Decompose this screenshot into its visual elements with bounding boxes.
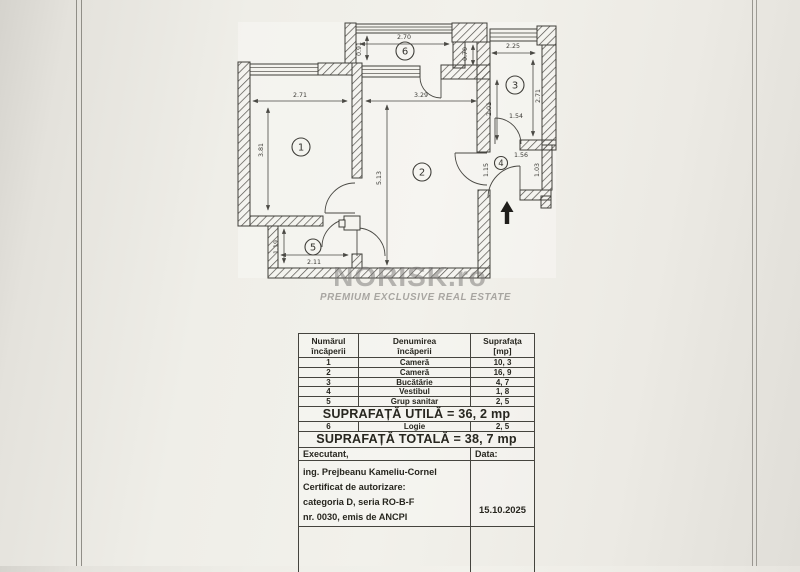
page-border-right-inner — [752, 0, 753, 566]
window-room2 — [362, 66, 420, 77]
page-border-right-outer — [756, 0, 757, 566]
wall-room5-stub — [352, 254, 362, 268]
date-label: Data: — [471, 448, 534, 460]
dim-room2-height: 5.13 — [376, 171, 383, 185]
table-row: 2 Cameră 16, 9 — [298, 368, 535, 378]
svg-text:5: 5 — [310, 243, 316, 254]
svg-text:1: 1 — [298, 143, 304, 154]
useful-area-row: SUPRAFAȚĂ UTILĂ = 36, 2 mp — [298, 407, 535, 422]
wall-room2-right-lower — [478, 190, 490, 278]
wall-kitchen-left — [477, 42, 490, 152]
executant-header-row: Executant, Data: — [298, 448, 535, 461]
page-border-left-inner — [81, 0, 82, 566]
dim-door-kitchen: 1.54 — [509, 113, 523, 120]
dim-room1-height: 3.81 — [258, 143, 265, 157]
table-row: 5 Grup sanitar 2, 5 — [298, 397, 535, 407]
table-row: 4 Vestibul 1, 8 — [298, 387, 535, 397]
executant-body-row: ing. Prejbeanu Kameliu-Cornel Certificat… — [298, 461, 535, 527]
dim-room4-height: 1.03 — [534, 163, 541, 177]
wall-logia-kitchen-block — [452, 23, 487, 42]
areas-table: Numărul încăperii Denumirea încăperii Su… — [298, 333, 535, 572]
executant-label: Executant, — [299, 448, 471, 460]
dim-room5-height: 1.19 — [273, 240, 280, 254]
window-kitchen — [490, 29, 537, 41]
total-area: SUPRAFAȚĂ TOTALĂ = 38, 7 mp — [299, 432, 534, 448]
wall-bottom — [268, 268, 490, 278]
scanned-floorplan-page: { "colors": { "paper": "#f1f0ea", "ink":… — [0, 0, 800, 566]
empty-bottom-row — [298, 527, 535, 572]
dim-kitchen-height: 2.71 — [535, 89, 542, 103]
wall-kitchen-bottom — [520, 140, 556, 150]
total-area-row: SUPRAFAȚĂ TOTALĂ = 38, 7 mp — [298, 432, 535, 449]
window-logia — [356, 24, 452, 33]
dim-kitchen-side: 2.01 — [486, 102, 493, 116]
dim-room2-width: 3.29 — [414, 92, 428, 99]
wall-entry-corner — [541, 196, 551, 208]
executant-details: ing. Prejbeanu Kameliu-Cornel Certificat… — [299, 461, 471, 526]
dim-logia-height: 0.91 — [356, 42, 363, 56]
header-room-number: Numărul încăperii — [299, 334, 359, 357]
date-value: 15.10.2025 — [471, 461, 534, 526]
svg-text:4: 4 — [498, 159, 503, 169]
svg-text:3: 3 — [512, 81, 518, 92]
table-row-logie: 6 Logie 2, 5 — [298, 422, 535, 432]
header-room-name: Denumirea încăperii — [359, 334, 471, 357]
wall-right-upper — [542, 45, 556, 145]
plan-paper-underlay — [238, 22, 556, 278]
table-header-row: Numărul încăperii Denumirea încăperii Su… — [298, 333, 535, 358]
header-area: Suprafața [mp] — [471, 334, 534, 357]
wall-left-outer — [238, 62, 250, 226]
page-border-left-outer — [76, 0, 77, 566]
wall-step-left — [250, 216, 323, 226]
wall-top-mid — [318, 63, 352, 75]
wall-logia-left — [345, 23, 356, 63]
dim-room4-width: 1.56 — [514, 152, 528, 159]
svg-text:6: 6 — [402, 47, 408, 58]
dim-room4-door: 1.15 — [483, 163, 490, 177]
useful-area-total: SUPRAFAȚĂ UTILĂ = 36, 2 mp — [299, 407, 534, 421]
table-row: 1 Cameră 10, 3 — [298, 358, 535, 368]
dim-wall-offset: 0.70 — [462, 47, 469, 61]
dim-room1-width: 2.71 — [293, 92, 307, 99]
wall-room1-room2 — [352, 63, 362, 178]
dim-logia-width: 2.70 — [397, 34, 411, 41]
dim-kitchen-width: 2.25 — [506, 43, 520, 50]
dim-room5-width: 2.11 — [307, 259, 321, 266]
wall-kitchen-corner — [537, 26, 556, 45]
wall-right-lower — [542, 145, 552, 190]
table-row: 3 Bucătărie 4, 7 — [298, 378, 535, 388]
floor-plan: 2.71 3.29 3.81 5.13 2.70 0.91 2.25 0.70 … — [228, 16, 573, 308]
svg-text:2: 2 — [419, 168, 425, 179]
window-room1 — [250, 64, 318, 75]
